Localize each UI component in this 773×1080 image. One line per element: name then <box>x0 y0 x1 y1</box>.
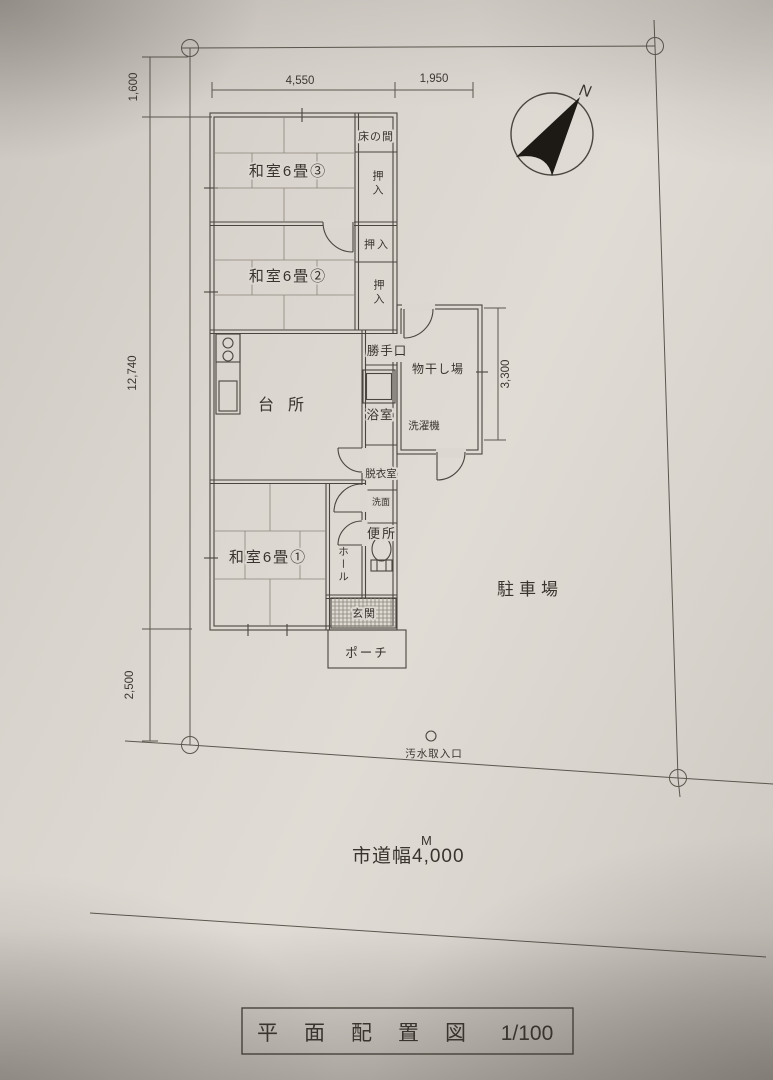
sewage-inlet-marker-icon <box>426 731 436 741</box>
room-labels: 床の間 押入 押入 押入 和室6畳③ 和室6畳② 和室6畳① 台所 勝手口 物干… <box>229 129 464 660</box>
label-closet-bottom: 押入 <box>372 278 385 307</box>
label-sewage-inlet: 汚水取入口 <box>405 747 463 760</box>
label-toilet: 便所 <box>367 526 397 541</box>
label-bath: 浴室 <box>366 407 393 422</box>
label-porch: ポーチ <box>345 646 389 660</box>
label-closet-top: 押入 <box>371 169 384 198</box>
dim-bottom-offset: 2,500 <box>124 671 136 700</box>
label-back-door: 勝手口 <box>367 343 408 358</box>
dim-top-offset: 1,600 <box>128 73 140 102</box>
road-far-edge <box>90 913 766 957</box>
title-block: 平面配置図 1/100 <box>242 1008 573 1054</box>
toilet-icon <box>371 537 392 571</box>
drawing-scale: 1/100 <box>501 1022 554 1045</box>
drawing-title: 平面配置図 <box>257 1022 492 1045</box>
label-tokonoma: 床の間 <box>358 129 394 143</box>
label-drying-area: 物干し場 <box>412 362 464 376</box>
label-washitsu3: 和室6畳③ <box>249 163 327 180</box>
label-road-width: 市道幅4,000 <box>352 845 465 867</box>
label-washstand: 洗面 <box>372 496 390 507</box>
label-entrance: 玄関 <box>352 606 376 620</box>
dim-extension-depth: 3,300 <box>500 360 512 389</box>
label-closet-mid: 押入 <box>364 237 390 251</box>
dim-house-width: 4,550 <box>286 75 315 87</box>
label-washitsu1: 和室6畳① <box>229 549 307 566</box>
north-arrow-icon: N <box>511 82 593 176</box>
label-parking: 駐車場 <box>497 580 563 599</box>
north-label: N <box>578 82 593 101</box>
door-swings <box>323 222 465 545</box>
kitchen-counter-icon <box>216 334 240 414</box>
site-boundary <box>125 20 773 797</box>
label-road-width-unit: M <box>421 833 432 848</box>
label-dressing-room: 脱衣室 <box>365 467 397 480</box>
floor-plan-drawing: 1,600 4,550 1,950 12,740 2,500 3,300 N <box>0 0 773 1080</box>
bathtub-icon <box>363 370 395 403</box>
label-washitsu2: 和室6畳② <box>249 268 327 285</box>
label-hall: ホール <box>337 546 349 584</box>
floor-plan-photo: 1,600 4,550 1,950 12,740 2,500 3,300 N <box>0 0 773 1080</box>
label-washing-machine: 洗濯機 <box>408 419 440 432</box>
dim-house-depth: 12,740 <box>127 355 139 390</box>
dim-right-width: 1,950 <box>420 73 449 85</box>
label-kitchen: 台所 <box>258 396 318 414</box>
site-labels: 駐車場 汚水取入口 市道幅4,000 M <box>90 580 766 957</box>
